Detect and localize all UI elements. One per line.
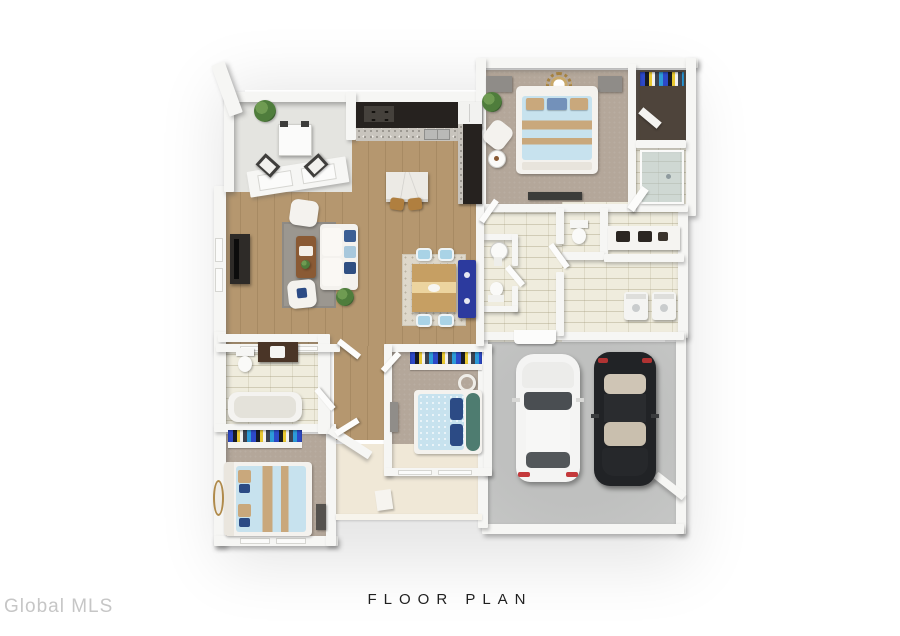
bed-pillow [238, 504, 251, 517]
buffet-knob [464, 272, 470, 278]
bathtub [228, 392, 302, 422]
wall-chimney-stub [211, 61, 243, 117]
wall-powder-bottom [482, 306, 518, 312]
bed-foot-bench [522, 162, 592, 170]
closet-sill [228, 442, 302, 448]
sofa-cushion [322, 258, 342, 286]
dryer-panel [654, 294, 674, 299]
bed-headboard [224, 462, 234, 536]
wall-right-garage [676, 332, 686, 534]
blue-buffet [458, 260, 476, 318]
bedroom3-window [276, 538, 306, 544]
dining-table [412, 264, 456, 312]
floor-plan-caption: FLOOR PLAN [0, 591, 900, 608]
bedroom3-window [240, 538, 270, 544]
dark-vanity [258, 342, 298, 362]
potted-plant [336, 288, 354, 306]
counter-edge [458, 124, 463, 204]
throw-pillow [344, 262, 356, 274]
bed-pillow [547, 98, 567, 110]
bed-pillow [450, 398, 463, 420]
porch-step [375, 489, 394, 511]
dresser [390, 402, 398, 432]
kitchen-tall-cabinets [458, 124, 482, 204]
wall-closet-shower [636, 140, 686, 148]
car-roof [604, 394, 646, 422]
car-roof [526, 410, 570, 452]
car-mirror [576, 398, 584, 402]
table-plant [301, 260, 310, 269]
armchair [287, 279, 318, 310]
wall-bedroom3-right [326, 424, 336, 546]
car-taillight [598, 358, 608, 363]
garage-entry-step [514, 330, 556, 344]
car-mirror [651, 414, 659, 418]
bed-pillow [450, 424, 463, 446]
living-window-left [215, 268, 223, 292]
dresser [486, 76, 512, 92]
table-decor [494, 156, 499, 161]
side-table [488, 150, 506, 168]
armchair-pillow [296, 288, 307, 299]
sofa [320, 224, 358, 290]
white-car [516, 354, 580, 482]
car-windshield [604, 422, 646, 446]
media-shelf [316, 504, 326, 530]
dining-chair [438, 248, 454, 261]
buffet-knob [464, 298, 470, 304]
dryer-door [660, 304, 668, 312]
media-shelf [528, 192, 582, 200]
dining-chair [416, 314, 432, 327]
car-mirror [591, 414, 599, 418]
wall-bedroom2-right [484, 344, 492, 476]
wall-bottom-garage [482, 524, 684, 534]
dryer [652, 292, 676, 320]
kitchen-sink [424, 129, 450, 140]
refrigerator [458, 102, 482, 124]
car-mirror [512, 398, 520, 402]
wall-master-closet [628, 64, 636, 212]
global-mls-watermark: Global MLS [4, 596, 113, 618]
bed-pillow [526, 98, 544, 110]
wall-top-right [476, 58, 698, 68]
table-tray [299, 246, 313, 256]
tub-basin [234, 396, 296, 418]
car-hood [522, 362, 574, 388]
sofa-cushion [322, 228, 342, 256]
throw-pillow [344, 246, 356, 258]
living-window-left [215, 238, 223, 262]
bedroom2-window [438, 470, 472, 475]
table-dish [428, 284, 440, 292]
closet-clothes [228, 430, 302, 442]
bed-pillow [239, 484, 250, 493]
wall-right-master [686, 58, 696, 216]
wall-nook-kitchen [346, 92, 356, 140]
tv-screen [234, 239, 239, 279]
wall-wc-bottom [562, 252, 604, 260]
fridge-door-line [469, 104, 470, 122]
toilet [236, 348, 254, 356]
bed [414, 390, 482, 454]
porch-floor [336, 444, 482, 520]
toilet-bowl [490, 282, 503, 296]
bed [224, 462, 312, 536]
sink-divider [437, 130, 438, 139]
dining-chair [416, 248, 432, 261]
bed-pillow [239, 518, 250, 527]
coffee-table [296, 236, 316, 278]
sink-pedestal [494, 257, 502, 266]
wall-powder-right-upper [512, 234, 518, 266]
washer [624, 292, 648, 320]
car-hood [602, 448, 648, 476]
bay-window-pane [257, 170, 293, 191]
bed-pillow [238, 470, 251, 483]
toilet-bowl [572, 228, 586, 244]
vanity-sink [616, 231, 630, 242]
glass-shower [640, 150, 684, 204]
potted-plant [482, 92, 502, 112]
washer-panel [626, 294, 646, 299]
porch-edge [336, 514, 482, 520]
oval-mirror [213, 480, 224, 516]
dining-chair [438, 314, 454, 327]
bath-vanity [608, 226, 680, 250]
car-rear-window [604, 374, 646, 394]
car-taillight [518, 472, 530, 477]
closet-sill [410, 364, 482, 370]
bed-pillow [570, 98, 588, 110]
car-taillight [566, 472, 578, 477]
shower-drain [666, 174, 671, 179]
floor-plan-screenshot: FLOOR PLAN Global MLS [0, 0, 900, 636]
closet-clothes [640, 72, 684, 86]
nook-table [278, 124, 312, 156]
potted-plant [254, 100, 276, 122]
black-car [594, 352, 656, 486]
wall-top-garage [478, 332, 684, 340]
car-taillight [642, 358, 652, 363]
nook-chair [280, 121, 288, 127]
tv-console [230, 234, 250, 284]
wall-wc-right [600, 208, 608, 258]
washer-door [632, 304, 640, 312]
island-stool [407, 197, 422, 210]
car-rear-window [526, 452, 570, 468]
wall-bathroom2-top [218, 334, 322, 342]
nook-chair [301, 121, 309, 127]
wall-master-bottom [476, 204, 688, 212]
wall-bath-left-upper [556, 208, 564, 244]
vanity-sink [638, 231, 652, 242]
dresser [598, 76, 622, 92]
wall-powder-top [482, 234, 516, 240]
island-stool [389, 197, 405, 211]
primary-bed [516, 86, 598, 174]
wall-bath-laundry [604, 254, 684, 262]
armchair [288, 198, 319, 228]
vanity-sink [270, 346, 285, 358]
throw-pillow [344, 230, 356, 242]
wall-bath-left-lower [556, 272, 564, 336]
closet-clothes [410, 352, 482, 364]
range-stove [364, 106, 394, 122]
bedroom2-window [398, 470, 432, 475]
bed-headboard [466, 393, 480, 451]
toilet-bowl [238, 356, 252, 372]
toilet [488, 295, 504, 302]
wall-dining-tile [476, 204, 484, 346]
vanity-tray [658, 232, 668, 241]
toilet [570, 220, 588, 228]
car-windshield [524, 392, 572, 410]
